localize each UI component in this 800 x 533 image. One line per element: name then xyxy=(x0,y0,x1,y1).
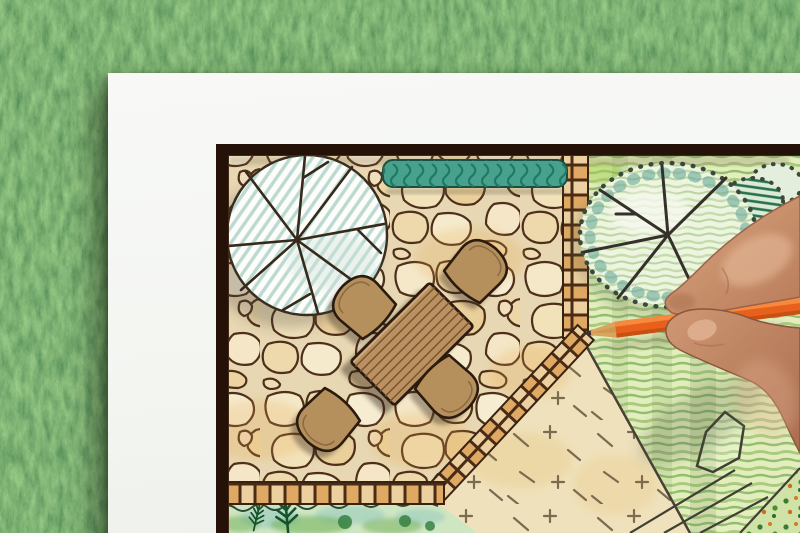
fingertip-shade xyxy=(667,293,695,311)
shrub-dot xyxy=(338,515,352,529)
shrub-dot xyxy=(399,515,411,527)
photo-scene xyxy=(0,0,800,533)
shrub-dot xyxy=(425,521,435,531)
edging-horizontal xyxy=(216,482,444,504)
garden-plan-drawing xyxy=(0,0,800,533)
